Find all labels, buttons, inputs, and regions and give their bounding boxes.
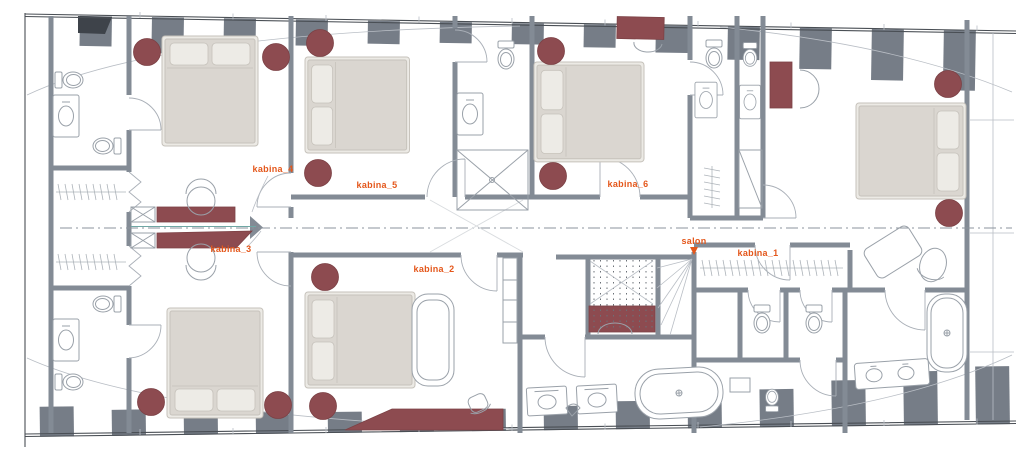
bathroom-kabina5 [457,41,528,210]
bed [167,308,263,418]
bed [305,292,415,388]
kabina2-furniture [412,258,517,416]
bed [856,103,966,199]
bed [534,62,644,162]
label-kabina-1: kabina_1 [738,248,779,258]
yacht-floor-plan: kabina_4 kabina_5 kabina_6 kabina_3 kabi… [0,0,1023,461]
desk-kabina2 [345,409,503,430]
bathroom-kabina6 [695,40,722,208]
corridor-cross-lines [430,200,523,252]
label-kabina-4: kabina_4 [253,164,294,174]
stair-red-steps [589,306,655,332]
label-salon: salon [681,236,706,246]
bed [162,36,258,146]
bed [305,57,410,153]
dresser-kabina1 [770,62,792,108]
bathroom-master-fwd [739,43,762,208]
vestibule-furniture [131,179,216,280]
master-bathroom [854,294,967,390]
label-kabina-2: kabina_2 [414,264,455,274]
floor-plan-canvas: kabina_4 kabina_5 kabina_6 kabina_3 kabi… [0,0,1023,461]
label-kabina-3: kabina_3 [211,244,252,254]
bathroom-kabina4 [53,72,121,154]
label-kabina-5: kabina_5 [357,180,398,190]
wardrobe-hangers [56,184,126,270]
bathroom-kabina3 [53,296,121,390]
salon-down-arrow [690,247,698,255]
bench-kabina6 [617,17,664,40]
label-kabina-6: kabina_6 [608,179,649,189]
